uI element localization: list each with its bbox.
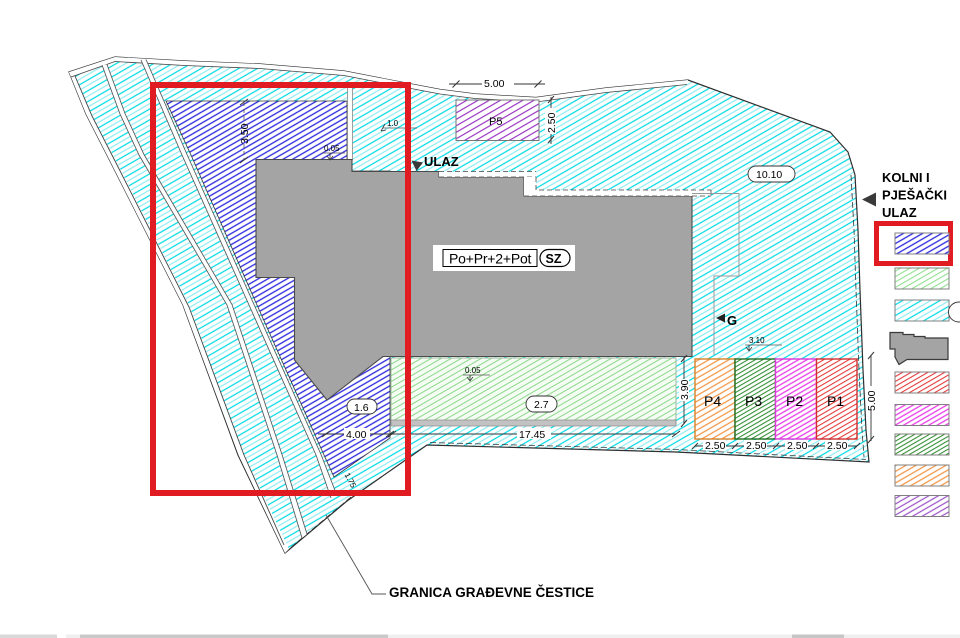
svg-text:ULAZ: ULAZ bbox=[424, 154, 459, 169]
svg-text:SZ: SZ bbox=[546, 252, 562, 266]
svg-text:1.6: 1.6 bbox=[354, 402, 369, 414]
svg-text:2.50: 2.50 bbox=[746, 440, 767, 452]
svg-text:3.10: 3.10 bbox=[749, 336, 765, 345]
svg-text:KOLNI I: KOLNI I bbox=[882, 170, 930, 185]
svg-text:3.50: 3.50 bbox=[239, 123, 251, 144]
svg-text:4.00: 4.00 bbox=[346, 429, 367, 441]
svg-text:0.05: 0.05 bbox=[324, 144, 340, 153]
svg-text:P4: P4 bbox=[704, 393, 721, 409]
svg-text:17.45: 17.45 bbox=[519, 429, 545, 441]
svg-text:2.50: 2.50 bbox=[787, 440, 808, 452]
svg-text:1.0: 1.0 bbox=[387, 119, 399, 128]
svg-text:P2: P2 bbox=[786, 393, 803, 409]
svg-text:2.50: 2.50 bbox=[827, 440, 848, 452]
svg-text:G: G bbox=[727, 313, 737, 328]
svg-text:ULAZ: ULAZ bbox=[882, 205, 917, 220]
svg-text:10.10: 10.10 bbox=[756, 169, 782, 181]
svg-text:2.50: 2.50 bbox=[546, 112, 558, 133]
svg-text:3.90: 3.90 bbox=[679, 379, 691, 400]
svg-text:GRANICA GRAĐEVNE ČESTICE: GRANICA GRAĐEVNE ČESTICE bbox=[389, 585, 594, 600]
svg-text:Po+Pr+2+Pot: Po+Pr+2+Pot bbox=[449, 251, 532, 267]
svg-text:PJEŠAČKI: PJEŠAČKI bbox=[882, 188, 947, 203]
svg-text:P5: P5 bbox=[489, 116, 502, 128]
svg-text:5.00: 5.00 bbox=[866, 390, 878, 411]
svg-text:P3: P3 bbox=[745, 393, 762, 409]
svg-text:0.05: 0.05 bbox=[465, 366, 481, 375]
svg-text:2.50: 2.50 bbox=[705, 440, 726, 452]
svg-text:5.00: 5.00 bbox=[484, 78, 505, 90]
svg-text:2.7: 2.7 bbox=[534, 399, 549, 411]
svg-text:P1: P1 bbox=[827, 393, 844, 409]
